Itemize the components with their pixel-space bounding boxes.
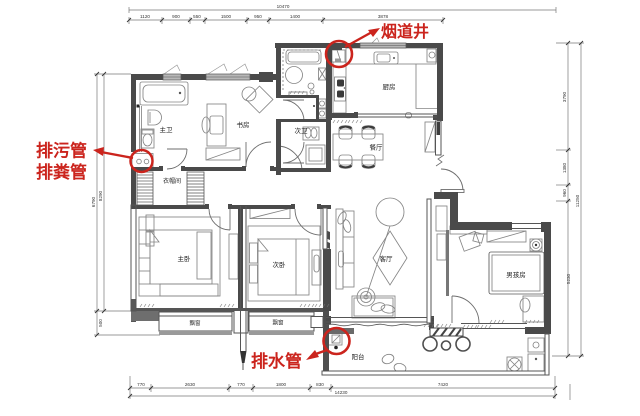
svg-text:客厅: 客厅 bbox=[380, 254, 394, 263]
svg-text:500: 500 bbox=[98, 319, 103, 327]
svg-text:衣帽间: 衣帽间 bbox=[163, 177, 181, 185]
svg-text:900: 900 bbox=[172, 14, 180, 19]
svg-text:14230: 14230 bbox=[335, 390, 348, 395]
svg-text:厨房: 厨房 bbox=[383, 82, 396, 91]
svg-text:主卫: 主卫 bbox=[160, 125, 174, 134]
svg-text:1120: 1120 bbox=[140, 14, 150, 19]
svg-text:1400: 1400 bbox=[290, 14, 301, 19]
svg-text:3790: 3790 bbox=[562, 91, 567, 102]
svg-text:770: 770 bbox=[137, 382, 145, 387]
svg-text:餐厅: 餐厅 bbox=[370, 143, 384, 152]
svg-text:10470: 10470 bbox=[277, 4, 290, 9]
svg-text:8290: 8290 bbox=[98, 190, 103, 201]
svg-text:主卧: 主卧 bbox=[178, 254, 192, 263]
svg-text:950: 950 bbox=[254, 14, 262, 19]
svg-text:2630: 2630 bbox=[185, 382, 196, 387]
svg-text:次卧: 次卧 bbox=[273, 260, 287, 269]
svg-text:770: 770 bbox=[237, 382, 245, 387]
svg-text:排水管: 排水管 bbox=[251, 351, 302, 371]
svg-text:1800: 1800 bbox=[276, 382, 287, 387]
svg-text:男孩房: 男孩房 bbox=[506, 270, 526, 279]
svg-text:1500: 1500 bbox=[221, 14, 232, 19]
svg-text:排粪管: 排粪管 bbox=[36, 162, 87, 182]
svg-text:830: 830 bbox=[316, 382, 324, 387]
svg-text:次卫: 次卫 bbox=[295, 126, 309, 135]
svg-text:7420: 7420 bbox=[438, 382, 449, 387]
svg-text:1380: 1380 bbox=[562, 162, 567, 173]
svg-text:6790: 6790 bbox=[91, 196, 96, 207]
svg-text:550: 550 bbox=[193, 14, 201, 19]
svg-text:烟道井: 烟道井 bbox=[381, 22, 429, 41]
svg-text:11250: 11250 bbox=[575, 194, 580, 207]
svg-text:飘窗: 飘窗 bbox=[272, 319, 284, 327]
svg-text:飘窗: 飘窗 bbox=[189, 319, 201, 327]
svg-text:阳台: 阳台 bbox=[352, 352, 365, 361]
svg-text:排污管: 排污管 bbox=[36, 141, 87, 161]
svg-text:书房: 书房 bbox=[237, 120, 250, 129]
svg-text:960: 960 bbox=[562, 189, 567, 197]
svg-text:3878: 3878 bbox=[378, 14, 389, 19]
svg-text:5230: 5230 bbox=[566, 273, 571, 284]
